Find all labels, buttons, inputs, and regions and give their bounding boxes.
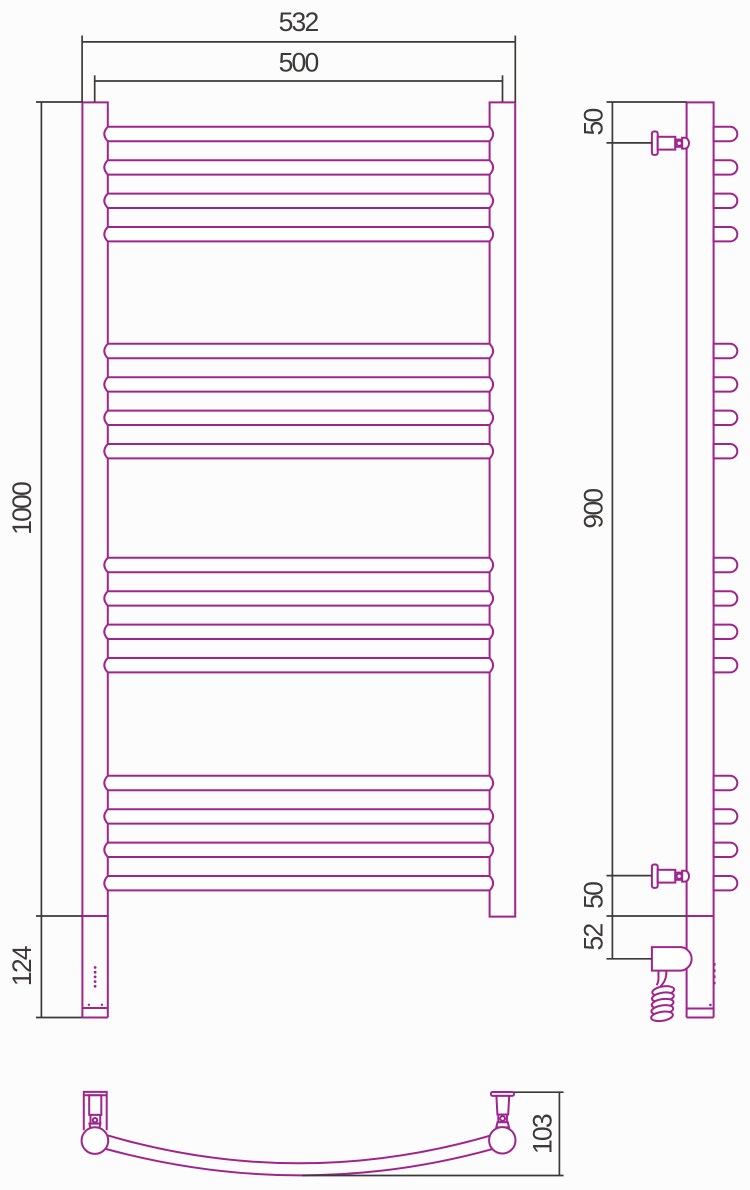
svg-text:50: 50: [578, 109, 608, 136]
svg-text:1000: 1000: [7, 482, 37, 535]
svg-text:900: 900: [578, 489, 608, 529]
svg-text:50: 50: [578, 882, 608, 909]
svg-text:52: 52: [578, 924, 608, 951]
svg-text:500: 500: [279, 47, 319, 77]
svg-text:532: 532: [279, 7, 319, 37]
svg-text:124: 124: [7, 946, 37, 986]
svg-text:103: 103: [528, 1114, 558, 1154]
